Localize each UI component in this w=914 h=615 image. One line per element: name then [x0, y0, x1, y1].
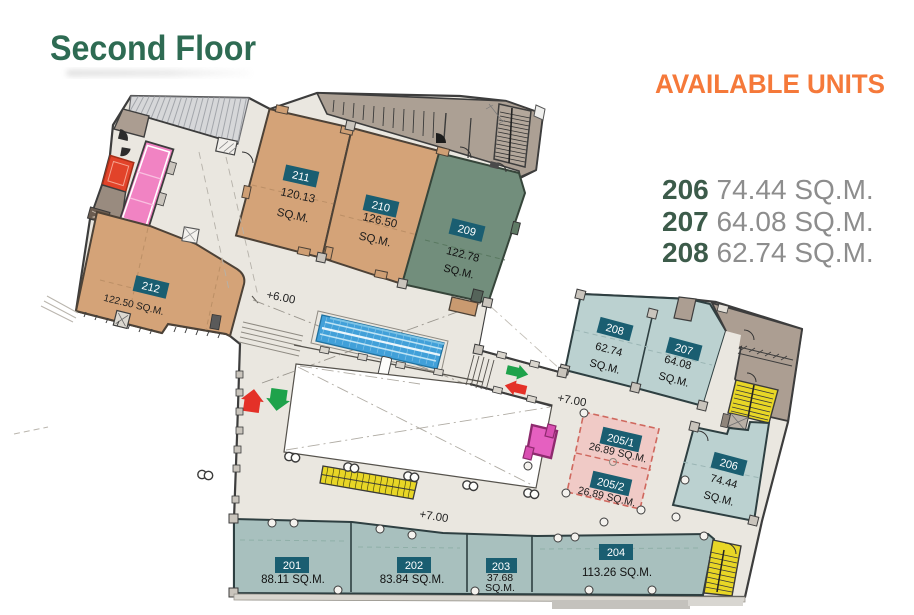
svg-text:88.11 SQ.M.: 88.11 SQ.M.	[261, 574, 325, 586]
svg-text:208 62.74 SQ.M.: 208 62.74 SQ.M.	[662, 237, 874, 268]
svg-text:83.84 SQ.M.: 83.84 SQ.M.	[380, 574, 445, 586]
svg-text:113.26 SQ.M.: 113.26 SQ.M.	[582, 567, 652, 579]
svg-text:207 64.08 SQ.M.: 207 64.08 SQ.M.	[662, 206, 874, 237]
svg-text:204: 204	[607, 547, 625, 559]
svg-text:AVAILABLE UNITS: AVAILABLE UNITS	[655, 69, 885, 99]
svg-text:Second Floor: Second Floor	[50, 29, 256, 68]
svg-text:201: 201	[283, 560, 301, 572]
svg-text:202: 202	[405, 560, 423, 572]
svg-text:206 74.44 SQ.M.: 206 74.44 SQ.M.	[662, 174, 874, 205]
svg-text:SQ.M.: SQ.M.	[485, 582, 515, 594]
